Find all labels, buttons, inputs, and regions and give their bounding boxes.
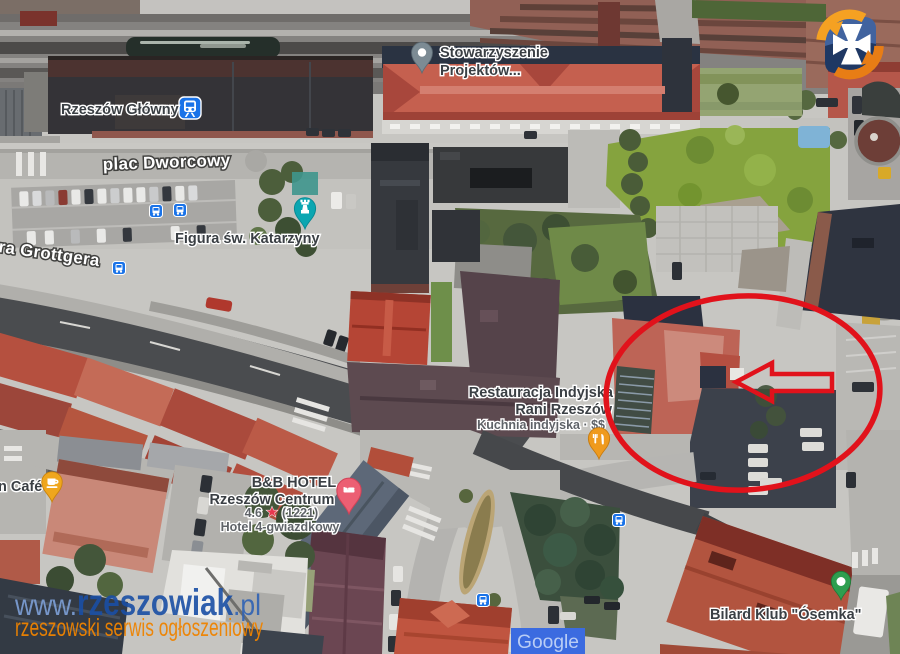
svg-text:Google: Google	[517, 632, 579, 653]
svg-text:Hotel 4-gwiazdkowy: Hotel 4-gwiazdkowy	[221, 520, 340, 534]
svg-text:(1221): (1221)	[282, 506, 318, 520]
svg-text:n Café: n Café	[0, 479, 42, 495]
svg-text:Stowarzyszenie: Stowarzyszenie	[440, 45, 548, 61]
svg-text:rzeszowski serwis ogłoszeniowy: rzeszowski serwis ogłoszeniowy	[15, 614, 263, 642]
svg-text:Figura św. Katarzyny: Figura św. Katarzyny	[175, 231, 320, 247]
svg-text:Projektów...: Projektów...	[440, 63, 521, 79]
svg-text:Rani Rzeszów: Rani Rzeszów	[515, 402, 612, 418]
svg-text:Restauracja Indyjska: Restauracja Indyjska	[469, 385, 614, 401]
svg-text:B&B HOTEL: B&B HOTEL	[252, 475, 337, 491]
svg-text:Bilard Klub "Ósemka": Bilard Klub "Ósemka"	[710, 605, 862, 623]
svg-text:Rzeszów Główny: Rzeszów Główny	[61, 102, 179, 118]
svg-text:4.6: 4.6	[245, 506, 262, 520]
svg-text:Kuchnia indyjska · $$: Kuchnia indyjska · $$	[477, 418, 605, 432]
